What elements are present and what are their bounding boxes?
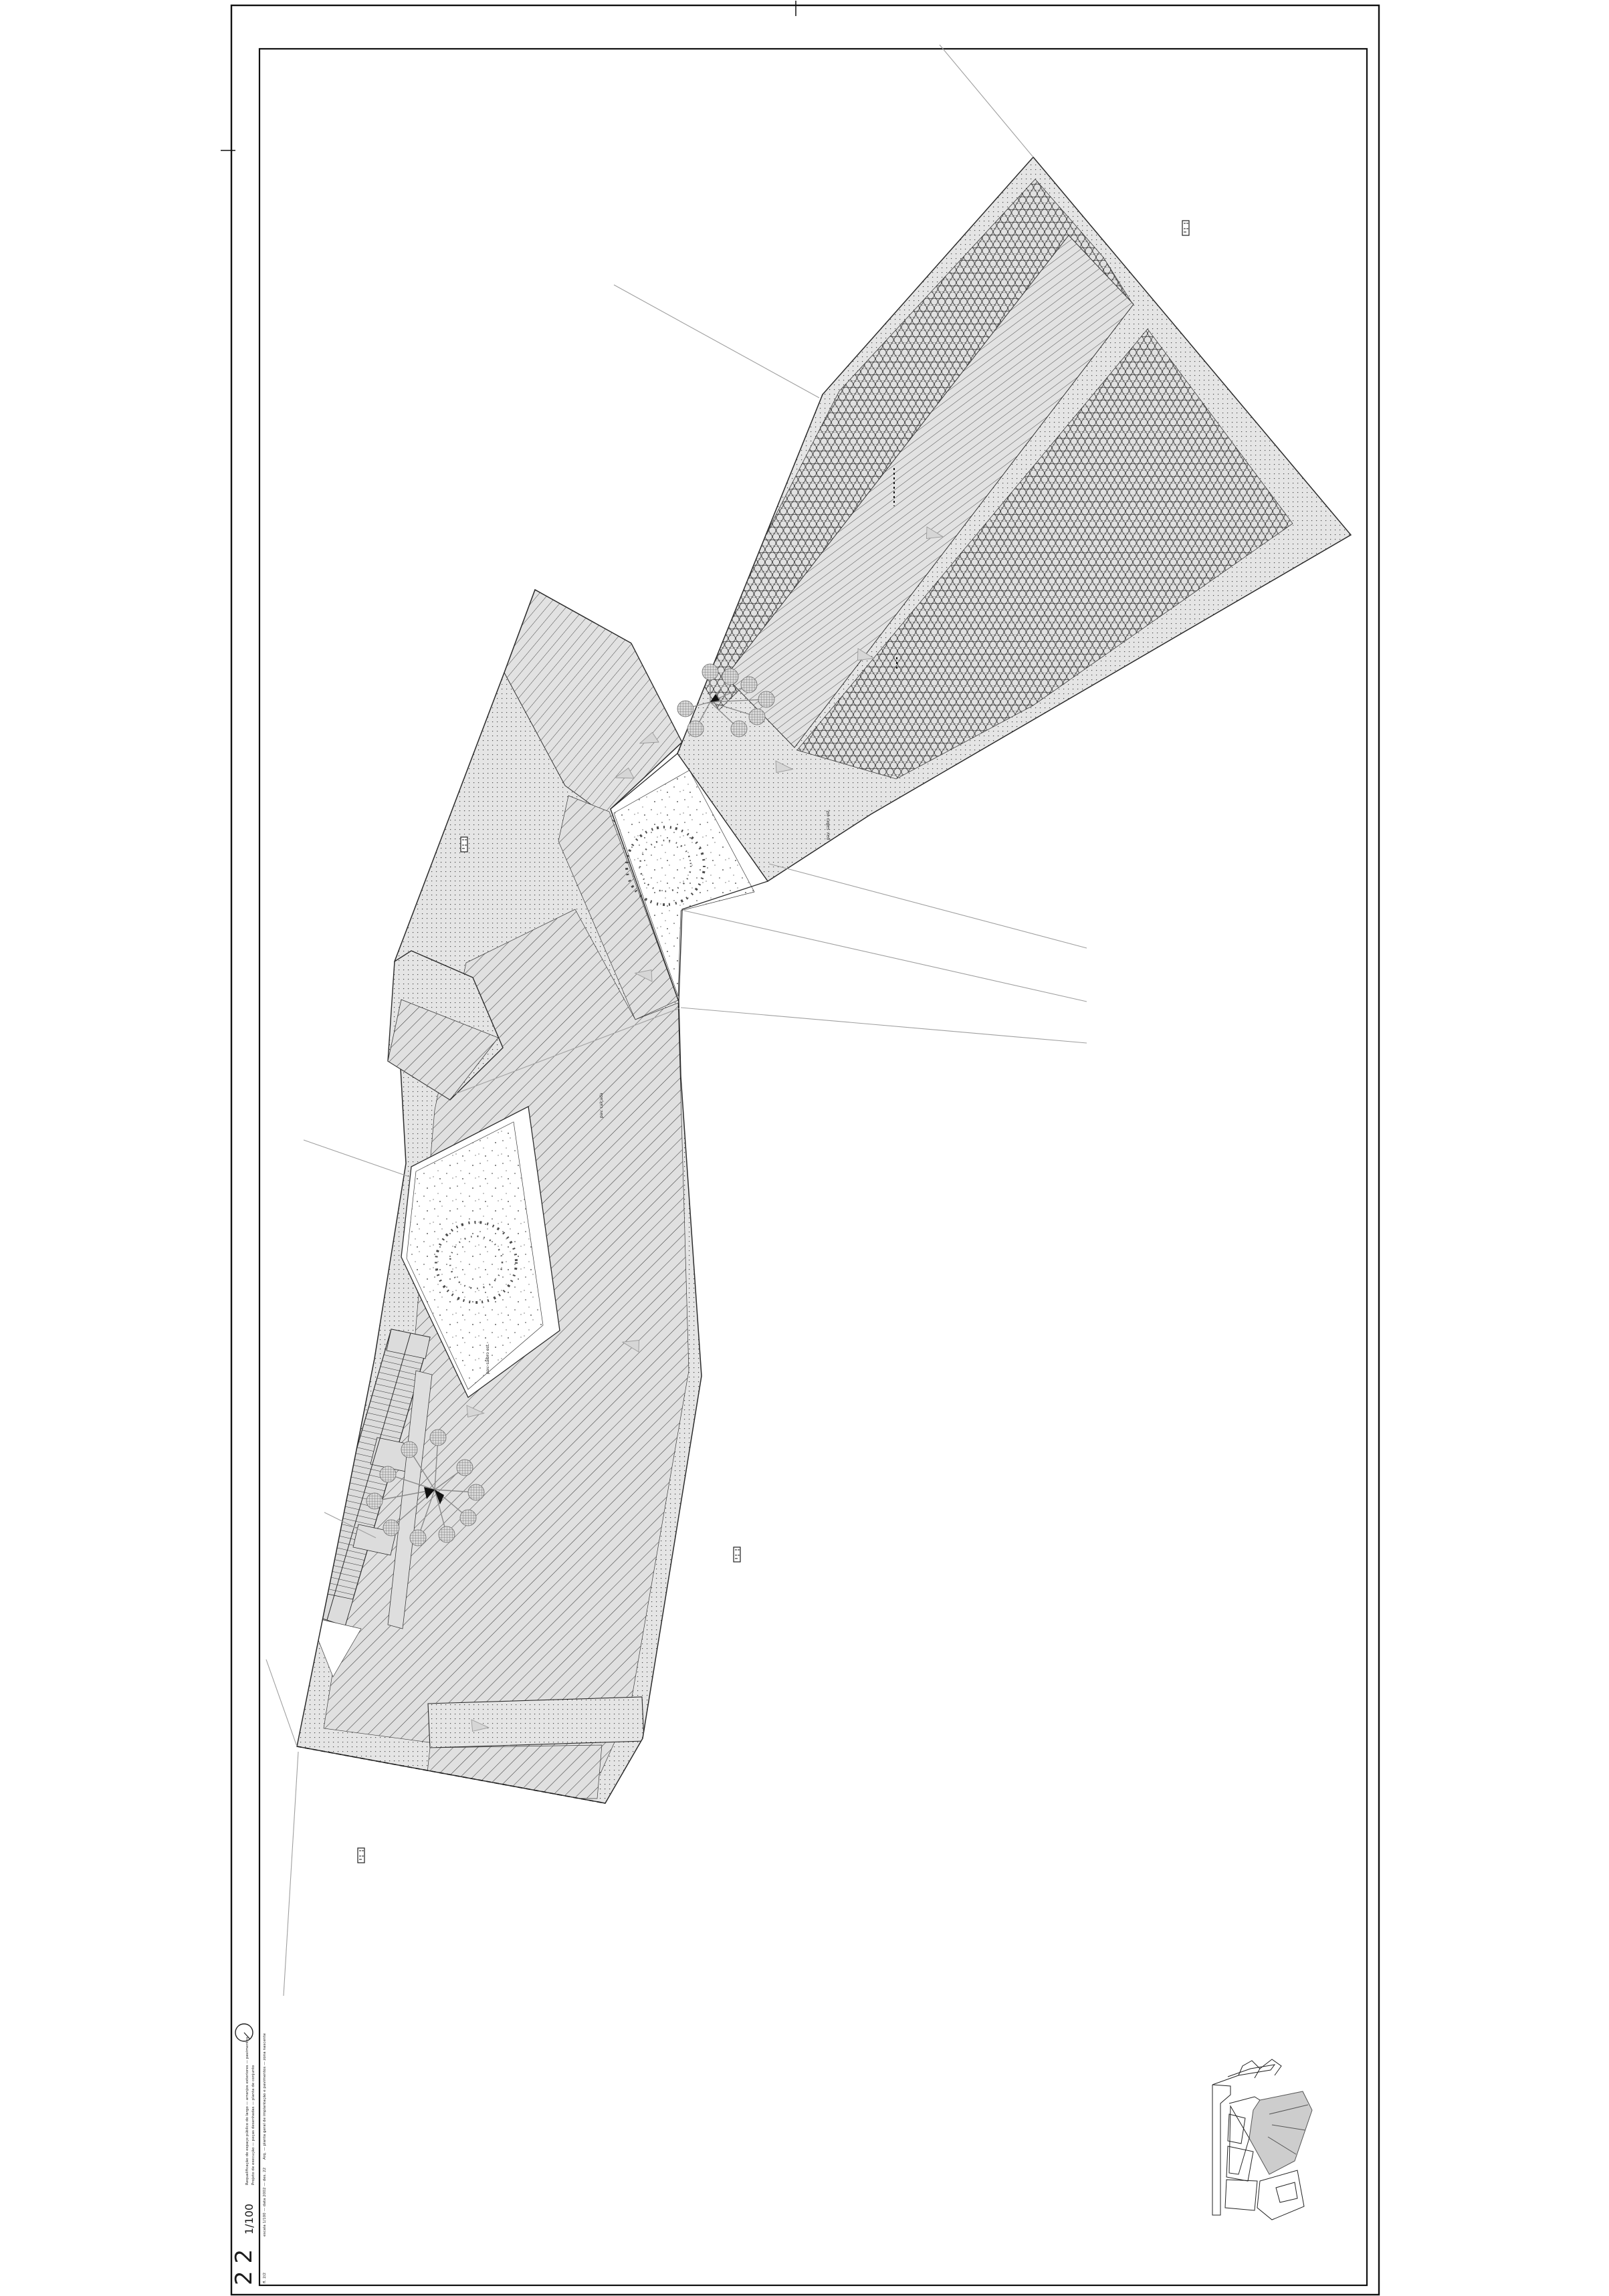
- right-arm-strip: [428, 1697, 644, 1748]
- titleblock-inner-line-3: fl. 2/2: [263, 2273, 267, 2283]
- scale-label: 1/100: [243, 2204, 255, 2234]
- courtyard2-note: pav. saibro est.: [486, 1343, 490, 1374]
- titleblock-margin-line-2: Projeto de execução — peças desenhadas —…: [251, 2065, 255, 2185]
- annotation-tag: [1182, 221, 1189, 235]
- sheet-number: 2 2: [231, 2249, 257, 2285]
- titleblock-inner-line-1: Arq. — planta geral de implantação e pav…: [263, 2033, 267, 2160]
- titleblock-margin-line-1: Requalificação do espaço público do larg…: [245, 2037, 249, 2185]
- annotation-tag: [734, 1547, 740, 1562]
- titleblock-inner-line-2: escala 1/100 — data 2002 — des. 22: [263, 2168, 267, 2236]
- drawing-sheet: pav. saibro est. pav. saibro est. pav. c…: [0, 0, 1609, 2296]
- hatch-note: pav. calçada: [599, 1093, 604, 1118]
- courtyard1-note: pav. saibro est.: [826, 809, 831, 840]
- annotation-tag: [461, 837, 467, 852]
- annotation-tag: [358, 1848, 364, 1863]
